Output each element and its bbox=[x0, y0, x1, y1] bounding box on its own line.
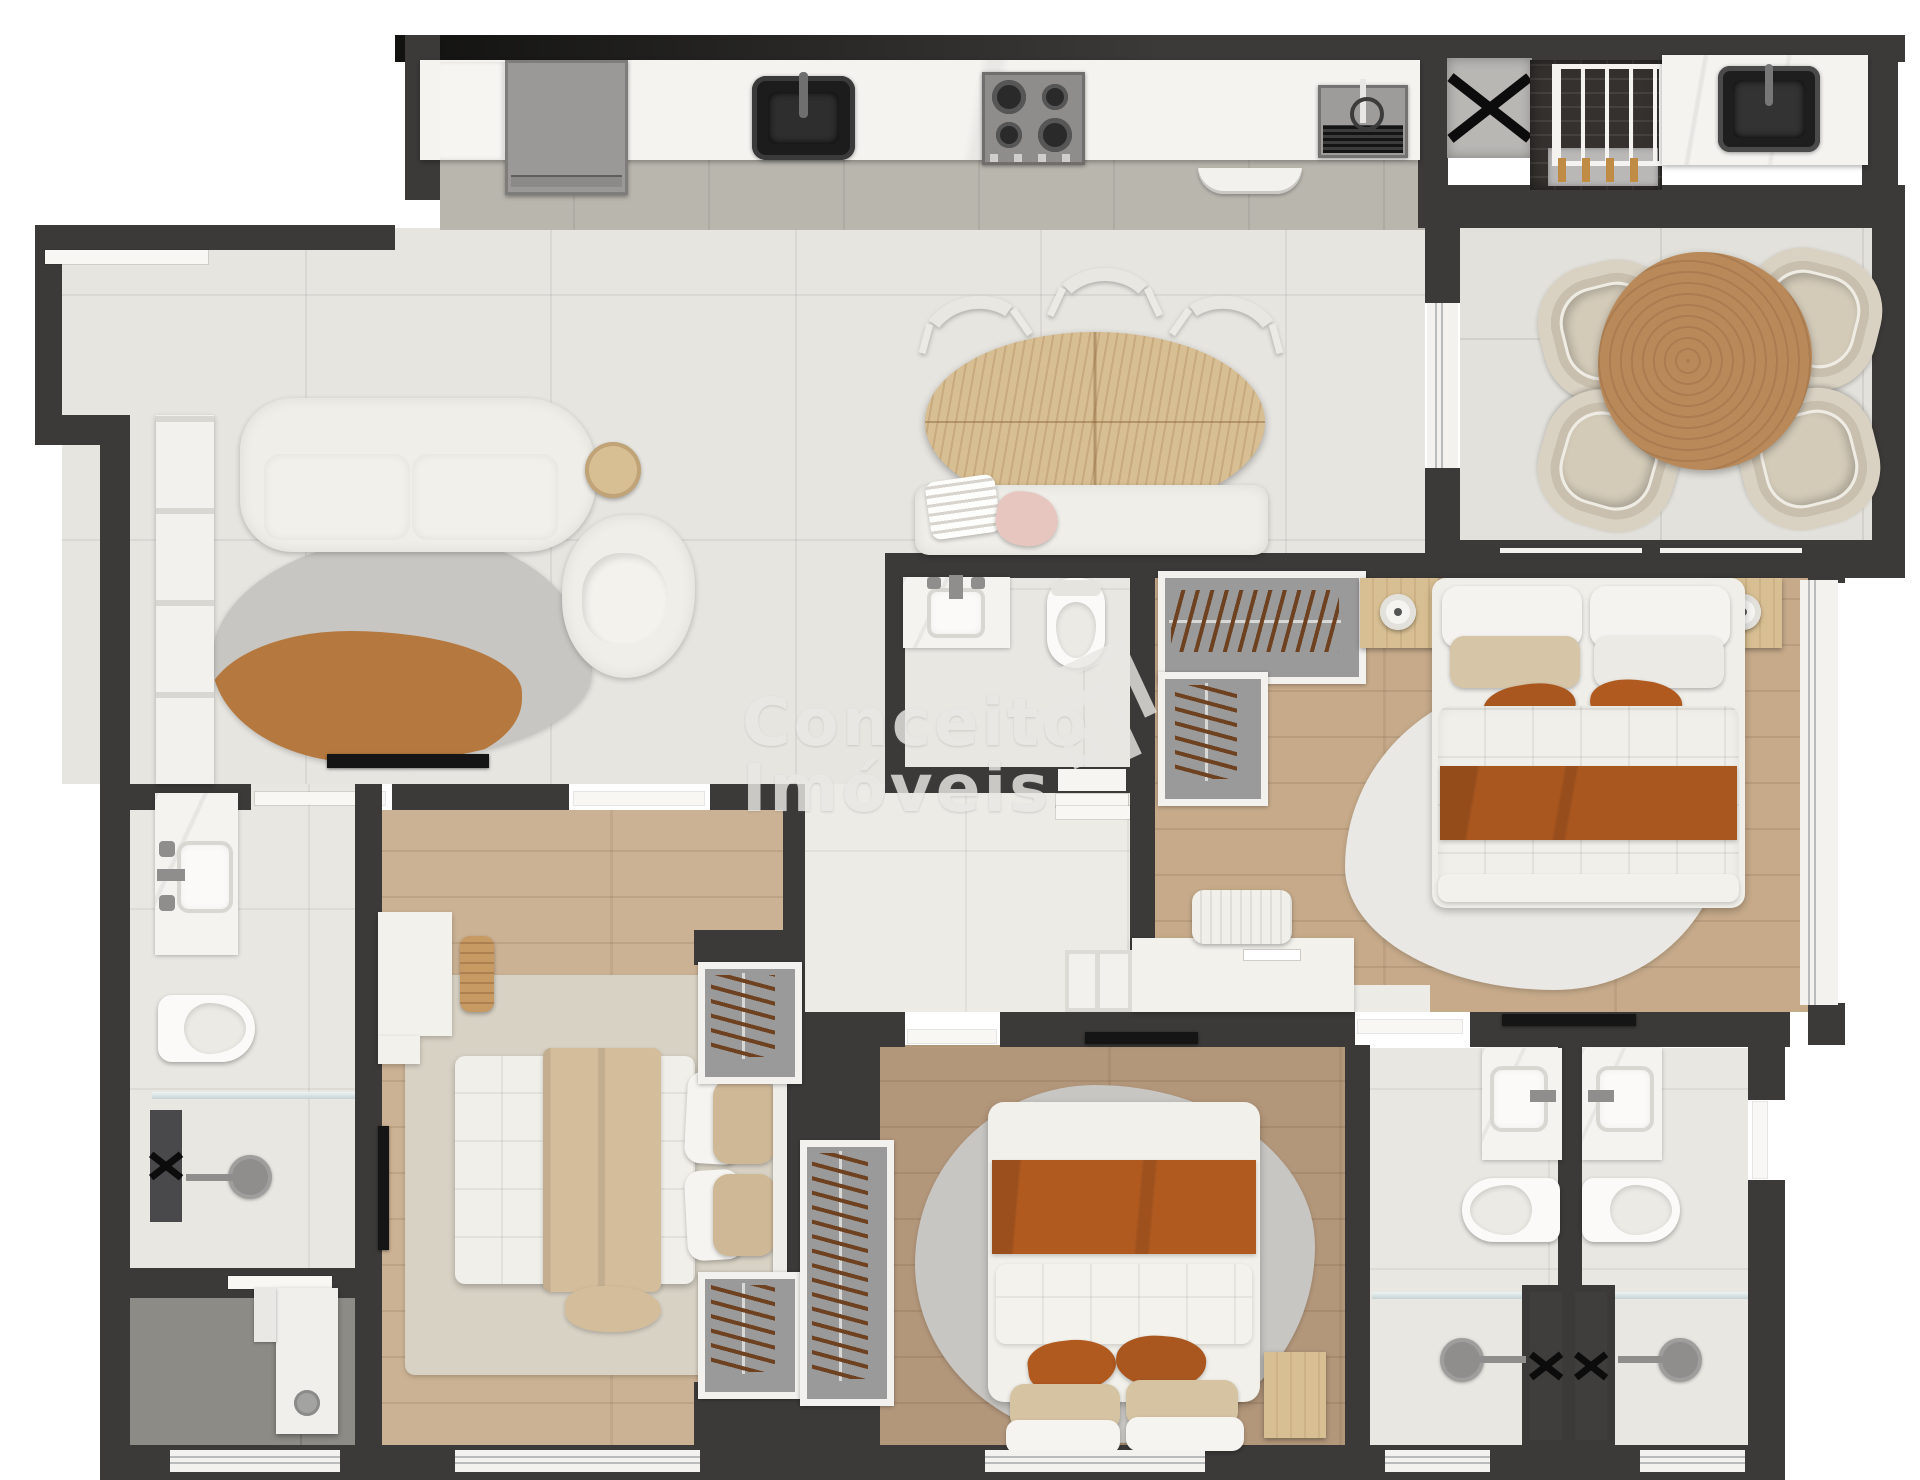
bathroom2-faucet bbox=[157, 869, 185, 881]
closet-hangers bbox=[1175, 685, 1237, 779]
hall-south-wall-a bbox=[805, 1012, 905, 1047]
closet-hangers bbox=[1171, 590, 1339, 652]
powder-left-wall bbox=[885, 553, 905, 793]
bedroom2-desk bbox=[378, 912, 452, 1036]
bathroom3-faucet bbox=[1530, 1090, 1556, 1102]
bedroom2-window bbox=[455, 1450, 700, 1472]
suite-bathroom-vanity bbox=[1582, 1048, 1662, 1160]
bedroom2-headboard bbox=[773, 1058, 787, 1284]
bathroom3-vanity bbox=[1482, 1048, 1562, 1160]
suite-closet-side bbox=[1158, 672, 1268, 806]
powder-faucet-knob-left bbox=[927, 577, 941, 589]
kitchen-sink bbox=[752, 76, 855, 160]
master-runner-rust bbox=[1440, 766, 1737, 840]
bathroom3-toilet bbox=[1462, 1178, 1560, 1242]
outer-wall-bottom bbox=[100, 1445, 1785, 1480]
sofa bbox=[240, 398, 596, 552]
suite-bathroom-window bbox=[1640, 1450, 1745, 1472]
twin-shaft-left bbox=[1530, 1292, 1562, 1440]
suite-hall-nook-floor bbox=[1350, 985, 1430, 1012]
kitchen-faucet bbox=[799, 72, 808, 118]
cooktop-knobs bbox=[990, 154, 1078, 162]
bathroom2-knob-bottom bbox=[159, 895, 175, 911]
accent-chair-cushion bbox=[582, 553, 668, 645]
cubby-divider bbox=[1095, 954, 1100, 1008]
bedroom3-pillow-white-2 bbox=[1126, 1417, 1244, 1451]
bench-pillow-striped bbox=[924, 473, 1001, 540]
twin-shaft-right bbox=[1575, 1292, 1607, 1440]
bedroom2-closet-lower bbox=[698, 1272, 802, 1399]
powder-faucet-knob-right bbox=[971, 577, 985, 589]
utility-appliance-drum bbox=[294, 1390, 320, 1416]
master-tv bbox=[1502, 1014, 1636, 1026]
suite-bathroom-toilet-bowl bbox=[1610, 1185, 1672, 1235]
bedroom3-runner-rust bbox=[992, 1160, 1256, 1254]
bathroom3-window bbox=[1385, 1450, 1490, 1472]
lamp-left bbox=[1380, 594, 1416, 630]
bedroom2-door-leaf bbox=[574, 792, 704, 805]
bedroom3-east-wall bbox=[1345, 1045, 1370, 1448]
hall-living-wall-b bbox=[392, 784, 569, 810]
side-table bbox=[585, 442, 641, 498]
utility-window bbox=[170, 1450, 340, 1472]
floor-plan: Conceito Imóveis bbox=[0, 0, 1920, 1480]
outer-wall-left-lower bbox=[100, 415, 130, 1480]
bedroom2-pillow-beige-1 bbox=[713, 1080, 775, 1164]
bathroom2-shower-head bbox=[228, 1155, 272, 1199]
bedroom3-window bbox=[985, 1450, 1205, 1472]
utility-shaft-top bbox=[1447, 58, 1532, 158]
bedroom3-closet bbox=[800, 1140, 894, 1406]
suite-bathroom-shower-arm bbox=[1618, 1356, 1662, 1363]
powder-toilet-bowl bbox=[1056, 602, 1096, 658]
suite-closet-top bbox=[1158, 571, 1366, 684]
bathroom3-toilet-bowl bbox=[1470, 1185, 1532, 1235]
bathroom2-east-wall bbox=[355, 784, 382, 1448]
bedroom3-mattress-band bbox=[996, 1264, 1252, 1344]
bedroom3-pillow-white-1 bbox=[1006, 1420, 1120, 1454]
balcony-right-wall bbox=[1872, 195, 1905, 568]
powder-door-threshold bbox=[1058, 769, 1126, 791]
suite-bathroom-door-leaf bbox=[1753, 1102, 1767, 1178]
closet-stub-upper bbox=[694, 930, 783, 965]
top-wall-shadow bbox=[395, 35, 1165, 62]
living-rug-orange-blob bbox=[212, 631, 522, 763]
burner-br bbox=[1038, 118, 1072, 152]
bedroom3-nightstand bbox=[1264, 1352, 1326, 1438]
powder-faucet bbox=[949, 575, 963, 599]
suite-cubby-shelf bbox=[1065, 950, 1132, 1012]
bedroom3-door-leaf bbox=[908, 1030, 996, 1043]
bedroom2-throw-beige bbox=[543, 1048, 661, 1292]
bedroom2-stool bbox=[460, 936, 494, 1012]
powder-toilet bbox=[1047, 578, 1105, 668]
bathroom2-shower-glass bbox=[152, 1092, 355, 1099]
twinbath-right-wall-lower bbox=[1748, 1180, 1785, 1480]
bedroom3-tv bbox=[1085, 1032, 1198, 1044]
powder-vanity bbox=[903, 577, 1010, 648]
bathroom3-door-leaf bbox=[1358, 1020, 1462, 1033]
closet-hangers bbox=[711, 975, 775, 1057]
hall-living-wall-c bbox=[710, 784, 805, 810]
twinbath-right-wall-upper bbox=[1748, 1045, 1785, 1100]
bedroom3-closet-block-upper bbox=[805, 1045, 880, 1140]
sofa-seat-right bbox=[412, 454, 558, 540]
bathroom2-shower-arm bbox=[186, 1174, 234, 1181]
master-bed-foot bbox=[1438, 874, 1739, 902]
bathroom3-shower-glass bbox=[1372, 1292, 1522, 1299]
sofa-seat-left bbox=[264, 454, 410, 540]
bathroom2-shaft bbox=[150, 1110, 182, 1222]
suite-bathroom-toilet bbox=[1582, 1178, 1680, 1242]
suite-bathroom-shower-head bbox=[1658, 1338, 1702, 1382]
master-right-wall-lower bbox=[1808, 1003, 1845, 1045]
powder-toilet-tank bbox=[1051, 580, 1101, 596]
bookshelf bbox=[156, 415, 214, 784]
laundry-sink bbox=[1718, 66, 1820, 152]
bedroom3-bed bbox=[988, 1102, 1260, 1454]
suite-door-leaf bbox=[1056, 806, 1130, 819]
bathroom2-toilet-bowl bbox=[184, 1003, 246, 1054]
bedroom2-throw-tail bbox=[565, 1286, 661, 1332]
suite-desk-item bbox=[1244, 950, 1300, 960]
bathroom2-toilet bbox=[158, 995, 255, 1062]
kitchen-wall-shelf bbox=[1198, 168, 1302, 194]
utility-appliance bbox=[276, 1288, 338, 1434]
suite-desk bbox=[1132, 938, 1354, 1012]
drying-rack-handles bbox=[1558, 158, 1652, 182]
entry-door-leaf bbox=[45, 250, 208, 264]
refrigerator-door-line bbox=[511, 175, 622, 187]
burner-tr bbox=[1042, 84, 1068, 110]
bedroom2-tv bbox=[378, 1126, 389, 1250]
entry-cabinet bbox=[440, 62, 505, 160]
refrigerator bbox=[505, 60, 628, 195]
bedroom2-pillow-beige-2 bbox=[713, 1174, 775, 1256]
balcony-top-wall bbox=[1428, 185, 1905, 228]
prep-faucet-ring bbox=[1350, 97, 1384, 131]
suite-bathroom-faucet bbox=[1588, 1090, 1614, 1102]
bedroom2-desk-return bbox=[378, 1036, 420, 1064]
drying-rack bbox=[1552, 64, 1664, 166]
burner-bl bbox=[996, 122, 1022, 148]
cooktop-4-burner bbox=[982, 72, 1085, 165]
prep-sink-drainboard bbox=[1318, 85, 1408, 158]
balcony-table bbox=[1598, 252, 1812, 470]
bathroom2-sink bbox=[177, 841, 233, 913]
master-pillow-beige-1 bbox=[1450, 636, 1580, 688]
bathroom2-knob-top bbox=[159, 841, 175, 857]
master-right-window bbox=[1800, 580, 1838, 1005]
balcony-glass-door bbox=[1427, 303, 1458, 468]
bedroom2-closet-upper bbox=[698, 962, 802, 1084]
closet-hangers bbox=[711, 1285, 775, 1372]
dining-balcony-wall-upper bbox=[1425, 228, 1460, 303]
laundry-faucet bbox=[1765, 64, 1773, 106]
closet-hangers bbox=[812, 1153, 868, 1379]
master-right-wall-upper bbox=[1808, 555, 1845, 583]
bathroom3-shower-arm bbox=[1478, 1356, 1526, 1363]
burner-tl bbox=[992, 80, 1026, 114]
suite-bathroom-shower-glass bbox=[1615, 1292, 1748, 1299]
outer-wall-topleft bbox=[35, 225, 395, 250]
living-tv bbox=[327, 754, 489, 768]
suite-desk-chair bbox=[1192, 890, 1292, 944]
bedroom2-bed bbox=[455, 1050, 790, 1290]
master-bed bbox=[1432, 578, 1745, 908]
bathroom2-vanity bbox=[155, 793, 238, 955]
utility-shelf bbox=[254, 1288, 276, 1342]
